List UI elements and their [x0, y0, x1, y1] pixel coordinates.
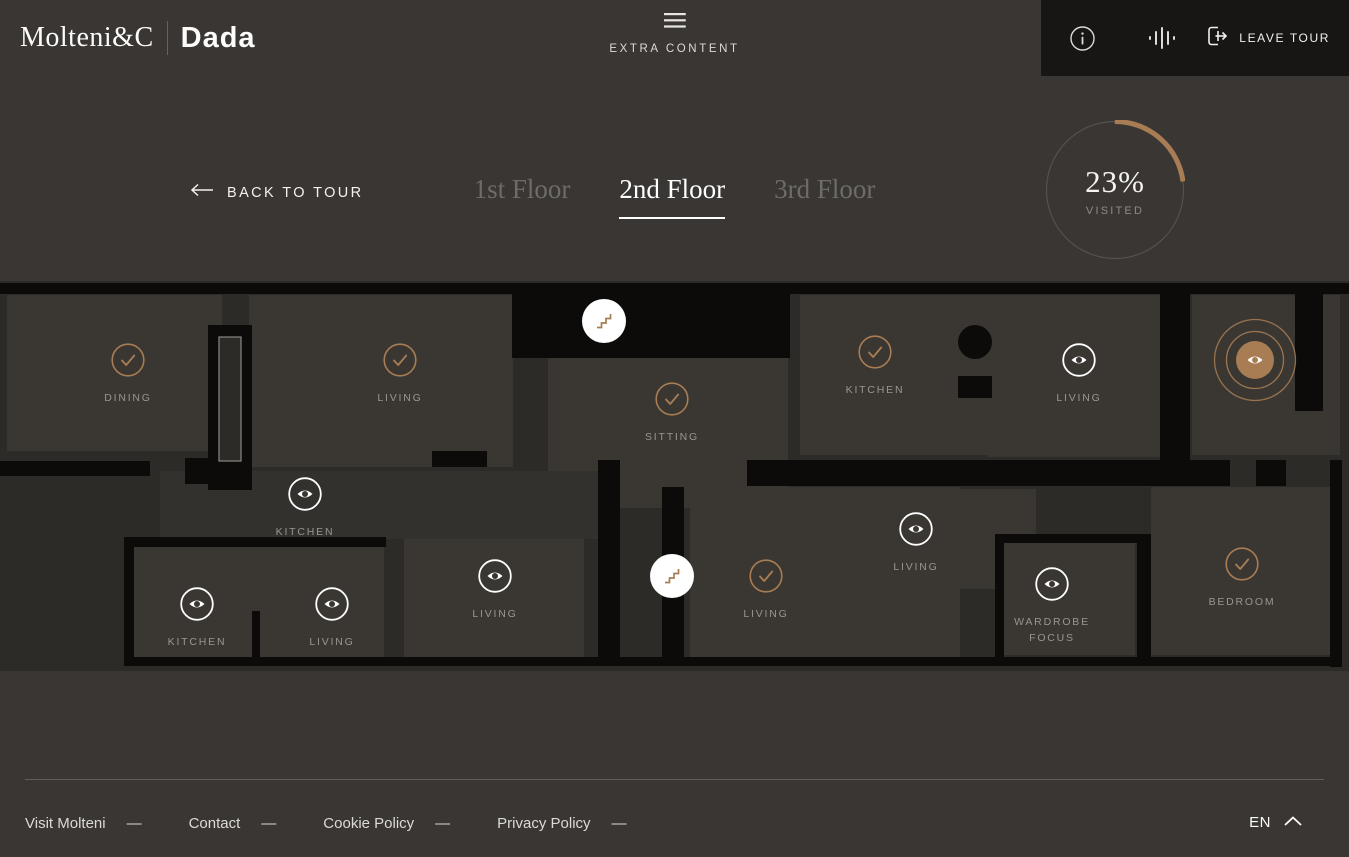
room-marker-kitchen[interactable]: KITCHEN: [805, 335, 945, 398]
header: Molteni&C Dada EXTRA CONTENT LEAVE TOUR: [0, 0, 1349, 76]
info-button[interactable]: [1070, 0, 1095, 76]
info-icon: [1070, 26, 1095, 51]
room-marker-sitting[interactable]: SITTING: [602, 382, 742, 445]
room-marker-kitchen[interactable]: KITCHEN: [235, 477, 375, 540]
marker-label: LIVING: [893, 559, 938, 575]
floor-plan: DININGLIVINGKITCHENSITTINGKITCHENLIVINGK…: [0, 281, 1349, 671]
language-selector[interactable]: EN: [1249, 813, 1302, 831]
audio-waveform-icon: [1146, 24, 1176, 52]
room-marker-living[interactable]: LIVING: [846, 512, 986, 575]
stairs-marker[interactable]: [534, 299, 674, 348]
check-icon: [1225, 547, 1259, 586]
marker-label: BEDROOM: [1209, 594, 1276, 610]
eye-icon: [315, 587, 349, 626]
marker-label: LIVING: [472, 606, 517, 622]
marker-label: KITCHEN: [168, 634, 227, 650]
marker-label: KITCHEN: [846, 382, 905, 398]
stairs-icon: [582, 299, 626, 348]
stairs-icon: [650, 554, 694, 603]
check-icon: [858, 335, 892, 374]
eye-icon: [1035, 567, 1069, 606]
leave-tour-label: LEAVE TOUR: [1239, 31, 1330, 45]
exit-icon: [1205, 24, 1229, 53]
room-marker-living[interactable]: LIVING: [330, 343, 470, 406]
check-icon: [655, 382, 689, 421]
floor-plan-markers: DININGLIVINGKITCHENSITTINGKITCHENLIVINGK…: [0, 281, 1349, 671]
brand-logo: Molteni&C Dada: [20, 0, 256, 76]
header-tools-panel: LEAVE TOUR: [1041, 0, 1349, 76]
marker-label: DINING: [104, 390, 152, 406]
check-icon: [749, 559, 783, 598]
eye-icon: [288, 477, 322, 516]
active-hotspot-marker[interactable]: [1185, 317, 1325, 408]
tab-3rd-floor[interactable]: 3rd Floor: [774, 174, 875, 219]
link-cookie-policy[interactable]: Cookie Policy: [323, 815, 414, 832]
logo-divider: [167, 21, 168, 55]
footer-divider: [25, 779, 1324, 780]
room-marker-living[interactable]: LIVING: [262, 587, 402, 650]
audio-button[interactable]: [1146, 0, 1176, 76]
tab-1st-floor[interactable]: 1st Floor: [474, 174, 571, 219]
room-marker-living[interactable]: LIVING: [425, 559, 565, 622]
link-visit-molteni[interactable]: Visit Molteni: [25, 815, 106, 832]
eye-icon: [478, 559, 512, 598]
tab-2nd-floor[interactable]: 2nd Floor: [619, 174, 725, 219]
visited-caption: VISITED: [1086, 205, 1144, 217]
eye-icon: [1062, 343, 1096, 382]
molteni-logo: Molteni&C: [20, 22, 154, 54]
dash-separator: —: [127, 815, 142, 832]
room-marker-living[interactable]: LIVING: [696, 559, 836, 622]
dash-separator: —: [612, 815, 627, 832]
eye-icon: [1212, 317, 1298, 408]
progress-readout: 23% VISITED: [1045, 120, 1185, 260]
dada-logo: Dada: [181, 22, 256, 55]
dash-separator: —: [435, 815, 450, 832]
room-marker-wardrobe-focus[interactable]: WARDROBE FOCUS: [982, 567, 1122, 647]
hamburger-menu-icon: [664, 13, 686, 33]
eye-icon: [899, 512, 933, 551]
visited-percent: 23%: [1085, 164, 1145, 200]
marker-label: LIVING: [1056, 390, 1101, 406]
marker-label: LIVING: [377, 390, 422, 406]
link-contact[interactable]: Contact: [189, 815, 241, 832]
room-marker-living[interactable]: LIVING: [1009, 343, 1149, 406]
marker-label: LIVING: [309, 634, 354, 650]
marker-label: WARDROBE FOCUS: [1014, 614, 1090, 647]
marker-label: KITCHEN: [276, 524, 335, 540]
tour-page: Molteni&C Dada EXTRA CONTENT LEAVE TOUR: [0, 0, 1349, 857]
footer-links: Visit Molteni — Contact — Cookie Policy …: [25, 815, 674, 832]
room-marker-bedroom[interactable]: BEDROOM: [1172, 547, 1312, 610]
marker-label: SITTING: [645, 429, 699, 445]
language-label: EN: [1249, 814, 1271, 831]
extra-content-button[interactable]: EXTRA CONTENT: [609, 13, 739, 55]
eye-icon: [180, 587, 214, 626]
leave-tour-button[interactable]: LEAVE TOUR: [1205, 0, 1330, 76]
chevron-up-icon: [1284, 813, 1302, 831]
link-privacy-policy[interactable]: Privacy Policy: [497, 815, 590, 832]
room-marker-kitchen[interactable]: KITCHEN: [127, 587, 267, 650]
check-icon: [383, 343, 417, 382]
extra-content-label: EXTRA CONTENT: [609, 43, 739, 55]
room-marker-dining[interactable]: DINING: [58, 343, 198, 406]
check-icon: [111, 343, 145, 382]
dash-separator: —: [261, 815, 276, 832]
marker-label: LIVING: [743, 606, 788, 622]
